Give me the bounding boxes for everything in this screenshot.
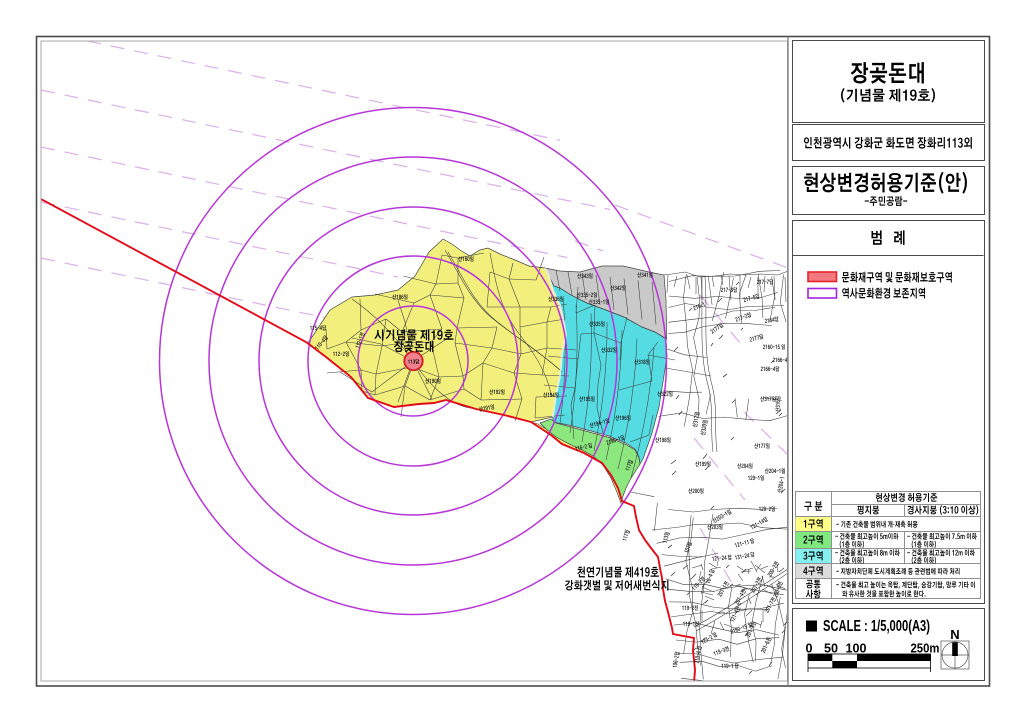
svg-text:250m: 250m: [911, 641, 940, 656]
svg-text:SCALE : 1/5,000(A3): SCALE : 1/5,000(A3): [823, 618, 930, 635]
svg-text:100: 100: [846, 641, 867, 656]
svg-text:50: 50: [824, 641, 838, 656]
svg-text:0: 0: [806, 641, 813, 656]
svg-text:N: N: [950, 627, 959, 642]
